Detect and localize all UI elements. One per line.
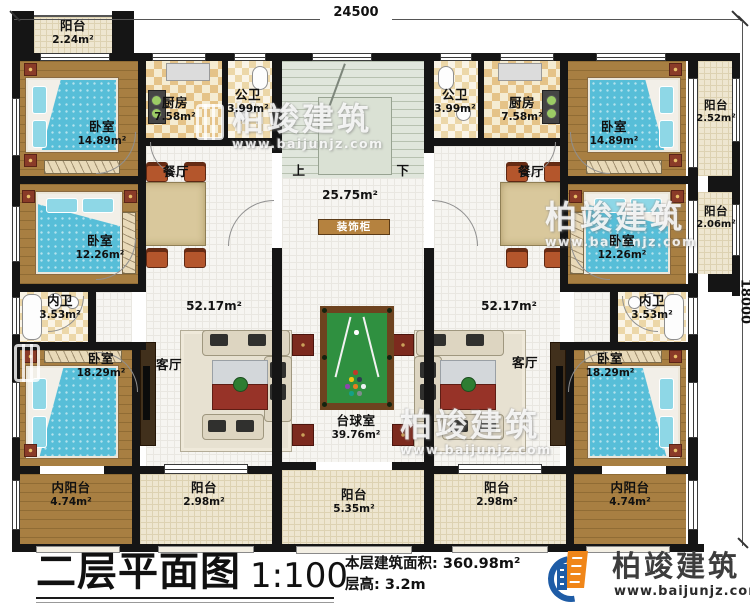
dining-chair bbox=[506, 248, 528, 268]
room-label-balcony-top-left: 阳台2.24m² bbox=[31, 19, 115, 47]
room-label-balcony-bottom-right: 阳台2.98m² bbox=[461, 481, 533, 509]
window bbox=[164, 464, 248, 474]
room-area: 18.29m² bbox=[566, 366, 654, 380]
room-area: 25.75m² bbox=[318, 188, 382, 202]
room-name: 卧室 bbox=[570, 120, 658, 134]
room-area: 12.26m² bbox=[578, 248, 666, 262]
pocket bbox=[322, 308, 327, 313]
floor-mat bbox=[392, 334, 414, 356]
room-area: 3.99m² bbox=[429, 102, 481, 116]
sofa-cushion bbox=[248, 334, 266, 346]
unit-area-label-right: 52.17m² bbox=[475, 299, 543, 313]
room-name: 内阳台 bbox=[26, 481, 116, 495]
pocket bbox=[387, 308, 392, 313]
billiard-ball bbox=[361, 384, 366, 389]
room-name: 公卫 bbox=[222, 88, 274, 102]
watermark-url: www.baijunjz.com bbox=[232, 136, 384, 152]
room-name: 卧室 bbox=[56, 234, 144, 248]
dining-chair bbox=[146, 248, 168, 268]
nightstand bbox=[669, 350, 682, 363]
floor-area-label: 本层建筑面积: bbox=[345, 556, 438, 572]
watermark-url: www.baijunjz.com bbox=[400, 442, 552, 458]
room-name: 阳台 bbox=[31, 19, 115, 33]
watermark: 柏竣建筑 www.baijunjz.com bbox=[400, 408, 552, 458]
room-name: 客厅 bbox=[501, 356, 549, 370]
billiard-ball bbox=[345, 384, 350, 389]
room-label-ensuite-right: 内卫3.53m² bbox=[620, 294, 684, 322]
nightstand bbox=[24, 444, 37, 457]
room-label-balcony-side2-right: 阳台2.06m² bbox=[694, 204, 738, 232]
room-label-bedroom1-left: 卧室14.89m² bbox=[58, 120, 146, 148]
floor-height-line: 层高: 3.2m bbox=[345, 575, 520, 596]
billiard-ball bbox=[357, 391, 362, 396]
room-label-public-bath-right: 公卫3.99m² bbox=[429, 88, 481, 116]
window bbox=[234, 53, 266, 61]
room-area: 7.58m² bbox=[139, 110, 211, 124]
room-label-living-left: 客厅 bbox=[145, 358, 193, 372]
hallway-left-floor bbox=[96, 292, 132, 342]
window bbox=[12, 297, 20, 335]
window bbox=[500, 53, 554, 61]
pocket bbox=[387, 355, 392, 360]
stair-down-text: 下 bbox=[392, 164, 414, 178]
floor-info: 本层建筑面积: 360.98m² 层高: 3.2m bbox=[345, 554, 520, 596]
wall bbox=[560, 284, 694, 292]
wall bbox=[248, 466, 282, 474]
window bbox=[458, 464, 542, 474]
room-area: 2.24m² bbox=[31, 33, 115, 47]
wall bbox=[610, 292, 618, 348]
room-label-bedroom2-left: 卧室12.26m² bbox=[56, 234, 144, 262]
drawing-title: 二层平面图 bbox=[36, 550, 241, 594]
nightstand bbox=[24, 63, 37, 76]
room-name: 餐厅 bbox=[148, 165, 204, 179]
room-name: 卧室 bbox=[58, 120, 146, 134]
room-label-balcony-bottom-center: 阳台5.35m² bbox=[318, 488, 390, 516]
hallway-right-floor bbox=[574, 292, 610, 342]
wall bbox=[666, 466, 694, 474]
room-area: 39.76m² bbox=[311, 428, 401, 442]
room-label-inner-balcony-left: 内阳台4.74m² bbox=[26, 481, 116, 509]
wall bbox=[132, 474, 140, 544]
floor-mat bbox=[292, 334, 314, 356]
window bbox=[688, 297, 698, 335]
room-label-inner-balcony-right: 内阳台4.74m² bbox=[585, 481, 675, 509]
room-area: 14.89m² bbox=[58, 134, 146, 148]
room-name: 卧室 bbox=[57, 352, 145, 366]
room-area: 5.35m² bbox=[318, 502, 390, 516]
room-name: 厨房 bbox=[139, 96, 211, 110]
window bbox=[312, 53, 372, 61]
room-name: 餐厅 bbox=[503, 165, 559, 179]
unit-area-label-left: 52.17m² bbox=[180, 299, 248, 313]
pocket bbox=[322, 402, 327, 407]
tv-screen bbox=[556, 366, 563, 420]
room-area: 12.26m² bbox=[56, 248, 144, 262]
pillow bbox=[32, 120, 47, 148]
room-label-bedroom3-right: 卧室18.29m² bbox=[566, 352, 654, 380]
room-name: 阳台 bbox=[318, 488, 390, 502]
title-underline-thin bbox=[36, 602, 334, 603]
room-name: 阳台 bbox=[461, 481, 533, 495]
watermark-text: 柏竣建筑 bbox=[545, 200, 697, 234]
cue-ball bbox=[354, 330, 359, 335]
room-name: 客厅 bbox=[145, 358, 193, 372]
room-name: 阳台 bbox=[694, 204, 738, 218]
stair-down-label: 下 bbox=[392, 164, 414, 178]
window bbox=[12, 206, 20, 262]
room-label-dining-right: 餐厅 bbox=[503, 165, 559, 179]
room-area: 4.74m² bbox=[585, 495, 675, 509]
wall bbox=[568, 466, 602, 474]
pillow bbox=[659, 86, 674, 114]
window-sill bbox=[296, 546, 412, 554]
wall bbox=[272, 248, 282, 552]
room-area: 2.52m² bbox=[694, 112, 738, 126]
window bbox=[12, 480, 20, 530]
room-name: 阳台 bbox=[694, 98, 738, 112]
room-label-balcony-bottom-left: 阳台2.98m² bbox=[168, 481, 240, 509]
billiard-ball bbox=[349, 391, 354, 396]
stair-up-text: 上 bbox=[288, 164, 310, 178]
brand-name: 柏竣建筑 bbox=[612, 550, 740, 582]
room-name: 公卫 bbox=[429, 88, 481, 102]
wall bbox=[12, 466, 40, 474]
sofa-cushion bbox=[208, 420, 226, 432]
sofa-cushion bbox=[466, 334, 484, 346]
room-name: 台球室 bbox=[311, 414, 401, 428]
dimension-width-label: 24500 bbox=[320, 5, 392, 20]
floor-plan-canvas: 装饰柜 bbox=[0, 0, 750, 612]
room-name: 阳台 bbox=[168, 481, 240, 495]
wall bbox=[424, 248, 434, 552]
window bbox=[40, 53, 110, 61]
room-name: 卧室 bbox=[578, 234, 666, 248]
brand-logo-tower-icon bbox=[557, 564, 567, 590]
decor-cabinet: 装饰柜 bbox=[318, 219, 390, 235]
window-sill bbox=[452, 546, 548, 553]
drawing-scale: 1:100 bbox=[250, 556, 348, 596]
billiard-ball bbox=[353, 384, 358, 389]
decor-cabinet-label: 装饰柜 bbox=[337, 221, 372, 233]
dining-table-left bbox=[140, 182, 206, 246]
nightstand bbox=[669, 63, 682, 76]
dimension-tick bbox=[737, 15, 748, 26]
wall bbox=[112, 11, 134, 53]
stair-area-label: 25.75m² bbox=[318, 188, 382, 202]
billiard-ball bbox=[349, 377, 354, 382]
watermark-text: 柏竣建筑 bbox=[400, 408, 552, 442]
pillow bbox=[659, 120, 674, 148]
wall bbox=[434, 466, 458, 474]
room-area: 4.74m² bbox=[26, 495, 116, 509]
wall bbox=[282, 462, 316, 470]
pocket bbox=[322, 355, 327, 360]
room-name: 厨房 bbox=[486, 96, 558, 110]
wall bbox=[12, 176, 138, 184]
room-area: 18.29m² bbox=[57, 366, 145, 380]
plant bbox=[461, 377, 476, 392]
room-area: 2.98m² bbox=[168, 495, 240, 509]
window bbox=[152, 53, 206, 61]
plant bbox=[233, 377, 248, 392]
pillow bbox=[659, 378, 674, 410]
room-area: 14.89m² bbox=[570, 134, 658, 148]
wall bbox=[708, 274, 740, 292]
room-area: 7.58m² bbox=[486, 110, 558, 124]
window bbox=[12, 98, 20, 156]
room-label-public-bath-left: 公卫3.99m² bbox=[222, 88, 274, 116]
wall bbox=[566, 474, 574, 544]
kitchen-sink bbox=[498, 63, 542, 81]
wall bbox=[542, 466, 566, 474]
sofa-cushion bbox=[236, 420, 254, 432]
nightstand bbox=[669, 154, 682, 167]
wall bbox=[140, 466, 164, 474]
wall bbox=[560, 342, 694, 350]
brand-logo-building-icon bbox=[564, 551, 588, 588]
nightstand bbox=[24, 154, 37, 167]
room-area: 52.17m² bbox=[180, 299, 248, 313]
room-area: 3.99m² bbox=[222, 102, 274, 116]
wall bbox=[568, 176, 694, 184]
floor-height-value: 3.2m bbox=[385, 577, 426, 593]
wall bbox=[12, 284, 146, 292]
window bbox=[12, 382, 20, 438]
room-label-dining-left: 餐厅 bbox=[148, 165, 204, 179]
floor-area-line: 本层建筑面积: 360.98m² bbox=[345, 554, 520, 575]
billiard-ball bbox=[353, 370, 358, 375]
room-label-ensuite-left: 内卫3.53m² bbox=[28, 294, 92, 322]
dimension-tick bbox=[737, 537, 748, 548]
pillow bbox=[32, 378, 47, 410]
nightstand bbox=[669, 444, 682, 457]
dimension-height-label: 18000 bbox=[738, 269, 750, 335]
room-label-bedroom3-left: 卧室18.29m² bbox=[57, 352, 145, 380]
pillow bbox=[46, 198, 78, 213]
wall bbox=[104, 466, 138, 474]
kitchen-sink bbox=[166, 63, 210, 81]
room-label-kitchen-right: 厨房7.58m² bbox=[486, 96, 558, 124]
brand-website: www.baijunjz.com bbox=[614, 584, 750, 599]
floor-height-label: 层高: bbox=[345, 577, 380, 593]
room-name: 内卫 bbox=[28, 294, 92, 308]
room-name: 卧室 bbox=[566, 352, 654, 366]
room-name: 内阳台 bbox=[585, 481, 675, 495]
room-label-living-right: 客厅 bbox=[501, 356, 549, 370]
room-label-bedroom2-right: 卧室12.26m² bbox=[578, 234, 666, 262]
title-underline bbox=[36, 597, 334, 599]
stair-up-label: 上 bbox=[288, 164, 310, 178]
wall bbox=[708, 176, 740, 192]
nightstand bbox=[124, 190, 137, 203]
room-area: 3.53m² bbox=[28, 308, 92, 322]
nightstand bbox=[22, 190, 35, 203]
room-label-bedroom1-right: 卧室14.89m² bbox=[570, 120, 658, 148]
window bbox=[596, 53, 666, 61]
room-name: 内卫 bbox=[620, 294, 684, 308]
pillow bbox=[32, 86, 47, 114]
billiard-ball bbox=[357, 377, 362, 382]
wall bbox=[560, 61, 568, 184]
window bbox=[440, 53, 472, 61]
wall bbox=[392, 462, 424, 470]
pocket bbox=[387, 402, 392, 407]
room-label-billiard: 台球室39.76m² bbox=[311, 414, 401, 442]
pillow bbox=[82, 198, 114, 213]
room-area: 3.53m² bbox=[620, 308, 684, 322]
sofa-cushion bbox=[210, 334, 228, 346]
room-area: 2.98m² bbox=[461, 495, 533, 509]
window bbox=[688, 382, 698, 438]
floor-area-value: 360.98m² bbox=[443, 556, 520, 572]
room-area: 2.06m² bbox=[694, 218, 738, 232]
dining-chair bbox=[184, 248, 206, 268]
room-label-balcony-side1-right: 阳台2.52m² bbox=[694, 98, 738, 126]
window bbox=[688, 480, 698, 530]
watermark-logo-icon bbox=[14, 344, 40, 382]
room-label-kitchen-left: 厨房7.58m² bbox=[139, 96, 211, 124]
room-area: 52.17m² bbox=[475, 299, 543, 313]
